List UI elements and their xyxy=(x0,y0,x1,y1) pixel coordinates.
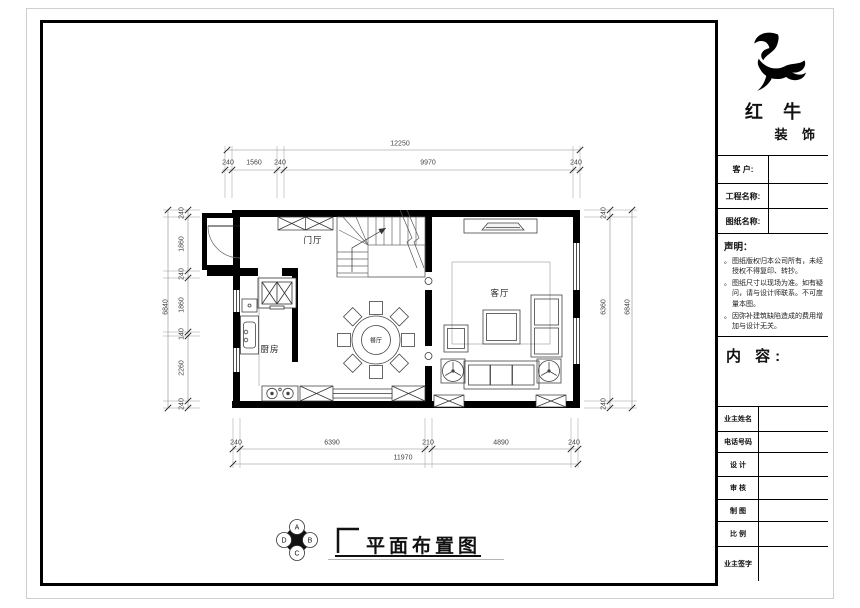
logo-cell: 红 牛 装 饰 xyxy=(718,20,828,156)
statement-section: 声明： 图纸版权归本公司所有，未经授权不得复印、转抄。 图纸尺寸以现场为准。如有… xyxy=(718,234,828,337)
elevation-letter-top: A xyxy=(295,525,300,532)
living-furniture xyxy=(441,219,562,389)
info-scale-label: 比 例 xyxy=(718,522,759,546)
bull-logo-icon xyxy=(736,26,812,96)
info-reviewer: 审 核 xyxy=(718,477,828,500)
dim-bottom-overall: 11970 xyxy=(394,455,413,462)
dim-left-seg: 240 xyxy=(179,398,186,410)
info-designer-label: 设 计 xyxy=(718,453,759,476)
info-owner-signature: 业主签字 xyxy=(718,547,828,581)
elevation-marker: A B C D xyxy=(272,516,322,564)
field-drawing-name-label: 图纸名称: xyxy=(718,209,769,233)
title-block: 红 牛 装 饰 客 户: 工程名称: 图纸名称: 声明： 图纸版权归本公司所有，… xyxy=(715,20,828,586)
dim-bottom-seg: 4890 xyxy=(493,440,509,447)
room-label-living: 客厅 xyxy=(490,287,509,299)
brand-subtitle: 装 饰 xyxy=(774,124,820,143)
dim-left-seg: 1860 xyxy=(179,236,186,252)
staircase xyxy=(337,210,425,277)
dim-bottom-seg: 240 xyxy=(568,440,580,447)
info-designer: 设 计 xyxy=(718,453,828,477)
title-underline-shadow xyxy=(328,559,504,560)
walls xyxy=(202,210,580,408)
dim-right-seg: 240 xyxy=(601,207,608,219)
dim-bottom-seg: 6390 xyxy=(324,440,340,447)
elevation-letter-bottom: C xyxy=(294,551,299,558)
dim-top-seg: 9970 xyxy=(420,160,436,167)
info-owner-name: 业主姓名 xyxy=(718,407,828,432)
info-phone-label: 电话号码 xyxy=(718,432,759,452)
title-bracket-icon xyxy=(335,526,363,556)
field-client-label: 客 户: xyxy=(718,156,769,183)
dim-left-seg: 140 xyxy=(179,328,186,340)
dim-top-seg: 240 xyxy=(222,160,234,167)
dim-top-overall: 12250 xyxy=(390,141,409,148)
statement-item: 因弥补建筑缺陷造成的费用增加与设计无关。 xyxy=(724,312,824,332)
dim-left-seg: 240 xyxy=(179,268,186,280)
floor-plan xyxy=(150,130,690,490)
dim-left-seg: 240 xyxy=(179,207,186,219)
dim-top-seg: 240 xyxy=(570,160,582,167)
field-project-name-label: 工程名称: xyxy=(718,184,769,208)
elevator-shaft xyxy=(258,278,296,309)
drawing-title: 平面布置图 xyxy=(366,531,481,558)
dim-right-seg: 6360 xyxy=(601,299,608,315)
elevation-letter-left: D xyxy=(281,538,286,545)
dim-top-seg: 1560 xyxy=(246,160,262,167)
dim-bottom-seg: 240 xyxy=(230,440,242,447)
field-client: 客 户: xyxy=(718,156,828,184)
content-section: 内 容: xyxy=(718,337,828,407)
dim-top-seg: 240 xyxy=(274,160,286,167)
title-underline xyxy=(335,555,481,557)
room-label-dining: 餐厅 xyxy=(370,336,382,345)
room-label-kitchen: 厨房 xyxy=(260,343,279,355)
info-scale: 比 例 xyxy=(718,522,828,547)
statement-item: 图纸版权归本公司所有，未经授权不得复印、转抄。 xyxy=(724,257,824,277)
info-owner-name-label: 业主姓名 xyxy=(718,407,759,431)
dim-right-seg: 240 xyxy=(601,398,608,410)
info-phone: 电话号码 xyxy=(718,432,828,453)
brand-name: 红 牛 xyxy=(718,98,828,124)
dim-left-overall: 6840 xyxy=(163,299,170,315)
field-project-name: 工程名称: xyxy=(718,184,828,209)
statement-list: 图纸版权归本公司所有，未经授权不得复印、转抄。 图纸尺寸以现场为准。如有疑问，请… xyxy=(724,257,824,332)
elevation-letter-right: B xyxy=(308,538,313,545)
field-drawing-name: 图纸名称: xyxy=(718,209,828,234)
dim-bottom-seg: 210 xyxy=(422,440,434,447)
dim-left-seg: 2260 xyxy=(179,360,186,376)
info-drafter-label: 制 图 xyxy=(718,500,759,521)
info-drafter: 制 图 xyxy=(718,500,828,522)
dim-right-overall: 6840 xyxy=(625,299,632,315)
room-label-entry-hall: 门厅 xyxy=(303,234,322,246)
statement-item: 图纸尺寸以现场为准。如有疑问，请与设计师联系。不可度量本图。 xyxy=(724,279,824,309)
info-owner-signature-label: 业主签字 xyxy=(718,547,759,581)
statement-heading: 声明： xyxy=(724,239,824,253)
drawing-sheet: 门厅 厨房 餐厅 客厅 12250 240 1560 240 9970 240 … xyxy=(0,0,860,608)
info-reviewer-label: 审 核 xyxy=(718,477,759,499)
dim-left-seg: 1860 xyxy=(179,297,186,313)
